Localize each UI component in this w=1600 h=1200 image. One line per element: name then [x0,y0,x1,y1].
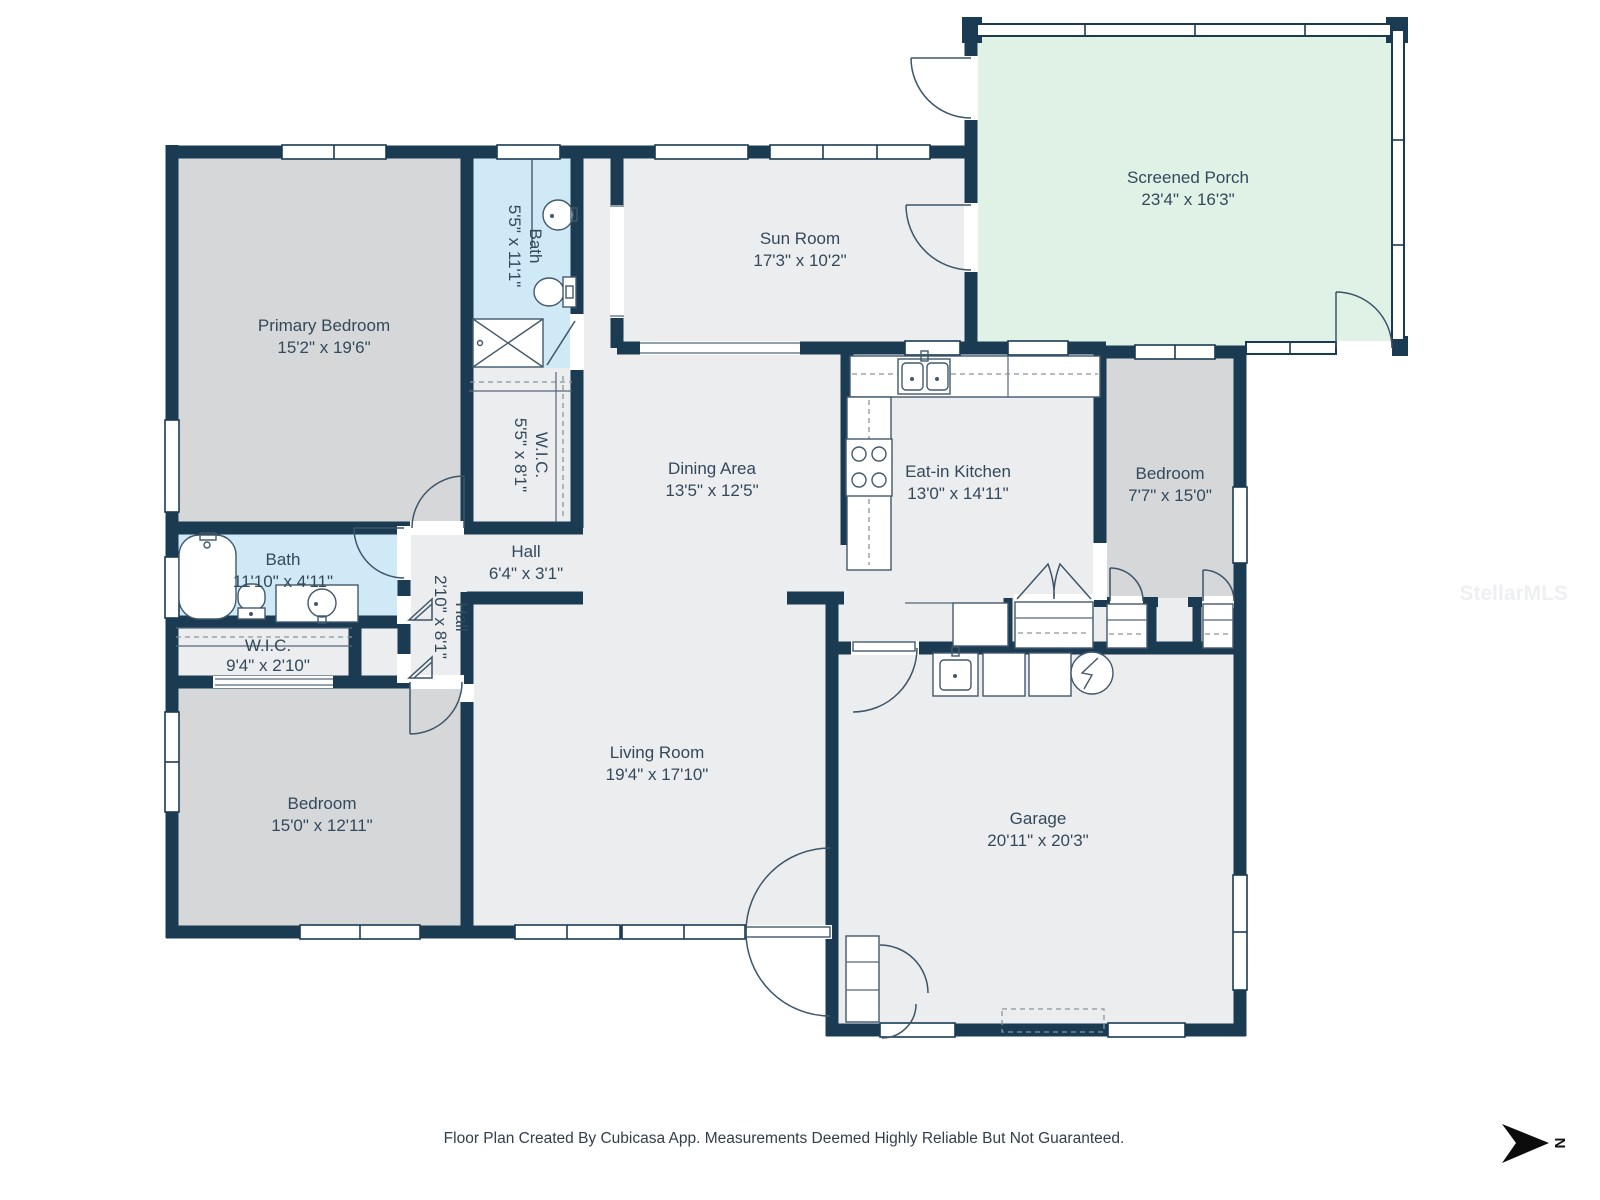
window [1008,341,1068,355]
room-dims-wic-hall: 9'4" x 2'10" [226,656,310,675]
kitchen-sink-icon [898,359,950,394]
washer-icon [983,653,1025,696]
north-arrow-icon: N [1502,1124,1568,1163]
room-label-screened-porch: Screened Porch [1127,168,1249,187]
room-label-wic-primary: W.I.C. [532,432,551,478]
room-dims-garage: 20'11" x 20'3" [987,831,1088,850]
room-dims-sun-room: 17'3" x 10'2" [753,251,846,270]
window [770,145,930,159]
kitchen-cabinet [953,603,1008,646]
north-label: N [1551,1138,1568,1149]
room-label-primary-bedroom: Primary Bedroom [258,316,390,335]
room-label-living-room: Living Room [610,743,705,762]
floor-plan: Primary Bedroom 15'2" x 19'6" Bath 5'5" … [0,0,1600,1200]
footer-disclaimer: Floor Plan Created By Cubicasa App. Meas… [444,1130,1125,1147]
room-dims-wic-primary: 5'5" x 8'1" [511,418,530,492]
room-label-hall: Hall [511,542,540,561]
window [905,341,960,355]
room-floor-sun-room [617,152,971,348]
window [165,420,179,512]
window [1233,487,1247,563]
room-dims-bath-hall: 11'10" x 4'11" [233,572,333,591]
room-label-bath-primary: Bath [526,229,545,264]
room-label-wic-hall: W.I.C. [245,636,291,655]
watermark: StellarMLS [1459,582,1568,605]
sink-icon [543,200,573,230]
room-dims-hall-2: 2'10" x 8'1" [431,575,450,659]
room-label-hall-2: Hall [452,602,471,631]
kitchen-counter [850,356,1100,397]
window [1108,1023,1185,1037]
window [497,145,560,159]
door-porch-side [911,58,971,118]
room-floor-hall [404,528,577,598]
window [165,557,179,618]
room-label-bedroom-left: Bedroom [288,794,357,813]
room-label-bedroom-right: Bedroom [1136,464,1205,483]
room-dims-bath-primary: 5'5" x 11'1" [505,205,524,288]
room-floor-screened-porch [971,30,1398,348]
front-door-leaf [746,927,830,937]
room-label-eat-in-kitchen: Eat-in Kitchen [905,462,1011,481]
window [880,1023,955,1037]
stove-icon [846,439,892,496]
window [655,145,748,159]
room-dims-bedroom-left: 15'0" x 12'11" [271,816,372,835]
room-dims-screened-porch: 23'4" x 16'3" [1141,190,1234,209]
room-label-sun-room: Sun Room [760,229,840,248]
toilet-icon [534,278,564,306]
room-dims-living-room: 19'4" x 17'10" [606,765,709,784]
room-dims-primary-bedroom: 15'2" x 19'6" [277,338,370,357]
room-dims-hall: 6'4" x 3'1" [489,564,563,583]
room-label-garage: Garage [1010,809,1067,828]
dryer-icon [1029,653,1071,696]
room-label-bath-hall: Bath [266,550,301,569]
garage-door-leaf [853,642,915,651]
room-dims-eat-in-kitchen: 13'0" x 14'11" [907,484,1008,503]
room-dims-bedroom-right: 7'7" x 15'0" [1128,486,1212,505]
room-label-dining-area: Dining Area [668,459,756,478]
water-heater-icon [1071,652,1113,694]
garage-storage [846,936,879,1022]
room-dims-dining-area: 13'5" x 12'5" [665,481,758,500]
